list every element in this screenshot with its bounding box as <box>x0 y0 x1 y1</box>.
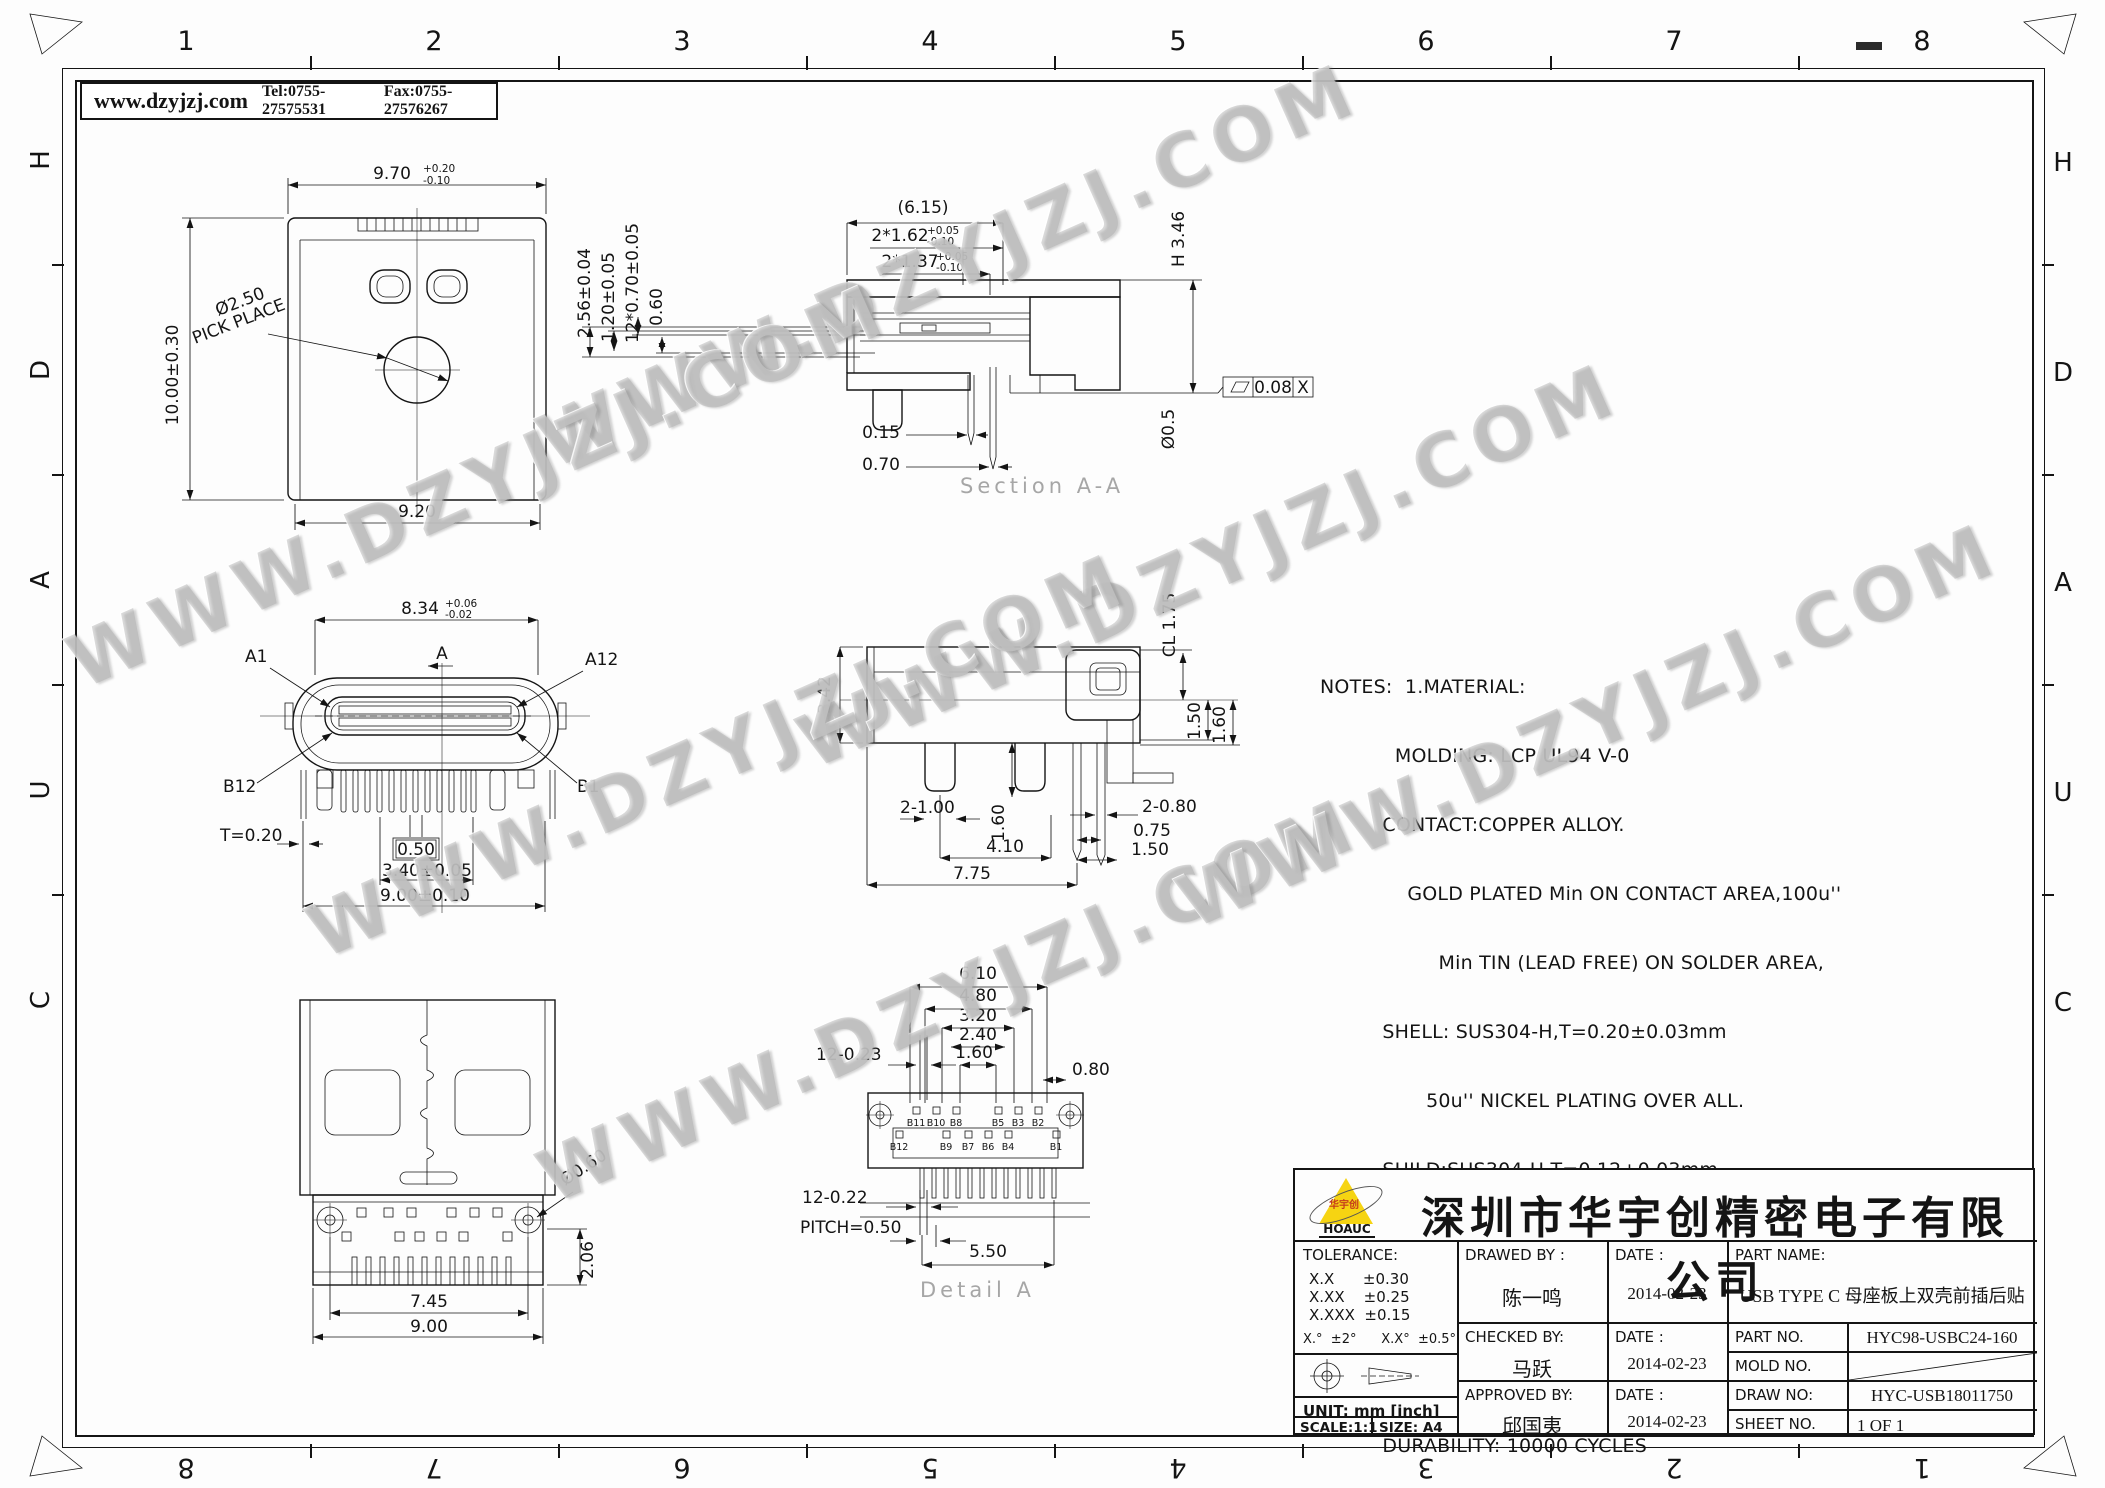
zone-letter-left-2: D <box>26 355 56 385</box>
pick-place-callout: Ø2.50 PICK PLACE <box>190 284 448 381</box>
section-pin-dims: 0.15 0.70 <box>862 423 1012 475</box>
zone-tick <box>52 894 64 896</box>
bottom-plate <box>313 1195 545 1285</box>
draw-no-label: DRAW NO: <box>1735 1386 1813 1404</box>
detail-pads-row2: B12 B9 B7 B6 B4 B1 <box>890 1131 1063 1153</box>
svg-text:X: X <box>1297 378 1309 398</box>
front-legs <box>301 770 555 819</box>
section-height-dim: H 3.46 Ø0.5 <box>1120 211 1202 449</box>
zone-number-top-3: 3 <box>662 26 702 57</box>
date-label-3: DATE : <box>1615 1386 1664 1404</box>
note-line: 50u'' NICKEL PLATING OVER ALL. <box>1320 1090 1841 1113</box>
zone-tick <box>2042 474 2054 476</box>
svg-text:B1: B1 <box>577 777 599 797</box>
svg-text:2*1.62: 2*1.62 <box>871 226 928 246</box>
note-line: NOTES: 1.MATERIAL: <box>1320 676 1841 699</box>
zone-tick <box>806 1444 808 1458</box>
side-pins <box>1073 743 1105 865</box>
zone-tick <box>806 56 808 70</box>
weld-slot-left <box>370 270 410 303</box>
detail-stacked-dims: 6.10 4.80 3.20 2.40 1.60 0.80 12-0.23 <box>816 964 1110 1103</box>
svg-text:B2: B2 <box>1032 1118 1045 1129</box>
svg-text:6.10: 6.10 <box>959 964 997 984</box>
svg-text:0.08: 0.08 <box>1254 378 1292 398</box>
zone-tick <box>1798 56 1800 70</box>
logo-name: HOAUC <box>1319 1222 1375 1238</box>
svg-text:0.60: 0.60 <box>647 288 667 326</box>
zone-tick <box>52 474 64 476</box>
pin-a1-callout: A1 <box>245 647 330 707</box>
shell-thickness-dim: T=0.20 <box>219 826 323 846</box>
svg-text:1.60: 1.60 <box>1210 706 1230 744</box>
detail-screw-right <box>1056 1101 1084 1129</box>
svg-text:-0.10: -0.10 <box>927 236 954 248</box>
svg-text:B12: B12 <box>223 777 256 797</box>
svg-text:0.15: 0.15 <box>862 423 900 443</box>
tolerance-angles: X.° ±2° X.X° ±0.5° <box>1303 1332 1456 1347</box>
svg-text:B11: B11 <box>907 1118 926 1129</box>
svg-text:B1: B1 <box>1050 1142 1063 1153</box>
corner-stamp <box>1856 42 1882 50</box>
svg-text:A: A <box>436 644 448 664</box>
pin-b1-callout: B1 <box>517 733 599 797</box>
zone-tick <box>558 1444 560 1458</box>
svg-text:7.75: 7.75 <box>953 864 991 884</box>
zone-number-top-7: 7 <box>1654 26 1694 57</box>
bottom-view: Ø0.60 7.45 9.00 2.06 <box>225 980 655 1352</box>
corner-trim-top-right <box>2016 10 2082 58</box>
zone-number-top-4: 4 <box>910 26 950 57</box>
detail-lower-dims: 12-0.22 PITCH=0.50 5.50 <box>800 1188 1054 1265</box>
svg-text:A12: A12 <box>585 650 618 670</box>
side-peg-2 <box>1015 743 1045 791</box>
svg-text:-0.10: -0.10 <box>423 175 450 187</box>
zone-number-bottom-8: 8 <box>166 1452 206 1483</box>
zone-tick <box>2042 264 2054 266</box>
note-line: MOLDING: LCP UL94 V-0 <box>1320 745 1841 768</box>
pin-a12-callout: A12 <box>517 650 618 707</box>
svg-text:9.70: 9.70 <box>373 164 411 184</box>
zone-tick <box>52 684 64 686</box>
svg-text:+0.20: +0.20 <box>423 163 455 175</box>
zone-number-top-2: 2 <box>414 26 454 57</box>
scale-value: SCALE:1:1 <box>1300 1420 1378 1436</box>
zone-letter-right-5: C <box>2048 988 2078 1018</box>
tolerance-label: TOLERANCE: <box>1303 1246 1398 1264</box>
svg-text:B4: B4 <box>1002 1142 1015 1153</box>
shell-seam <box>421 1000 434 1185</box>
draw-no-value: HYC-USB18011750 <box>1849 1386 2035 1406</box>
screw-boss-right <box>511 1203 545 1237</box>
zone-number-top-5: 5 <box>1158 26 1198 57</box>
detail-plate: B11 B10 B8 B5 B3 B2 B12 B9 B7 B6 B4 B1 <box>860 1093 1090 1217</box>
note-line: SHELL: SUS304-H,T=0.20±0.03mm <box>1320 1021 1841 1044</box>
sheet-no-label: SHEET NO. <box>1735 1415 1816 1433</box>
svg-text:3.42: 3.42 <box>815 676 835 714</box>
svg-text:1.50: 1.50 <box>1131 840 1169 860</box>
zone-tick <box>310 56 312 70</box>
svg-text:Ø0.5: Ø0.5 <box>1159 409 1179 449</box>
svg-text:2.56±0.04: 2.56±0.04 <box>575 248 595 338</box>
svg-text:12-0.23: 12-0.23 <box>816 1045 882 1065</box>
logo-text: 华宇创 <box>1329 1196 1359 1211</box>
top-view-width-dim: 9.70 +0.20 -0.10 <box>288 163 546 214</box>
zone-letter-right-2: D <box>2048 358 2078 388</box>
zone-number-bottom-7: 7 <box>414 1452 454 1483</box>
tolerance-row-1: X.X ±0.30 <box>1309 1270 1409 1288</box>
flatness-icon <box>1231 382 1249 392</box>
svg-text:0.80: 0.80 <box>1072 1060 1110 1080</box>
corner-trim-top-left <box>24 10 90 58</box>
zone-letter-right-1: H <box>2048 148 2078 178</box>
contact-comb <box>367 218 466 231</box>
note-line: CONTACT:COPPER ALLOY. <box>1320 814 1841 837</box>
part-name-label: PART NAME: <box>1735 1246 1826 1264</box>
part-no-label: PART NO. <box>1735 1328 1804 1346</box>
svg-text:B10: B10 <box>927 1118 946 1129</box>
svg-text:Ø0.60: Ø0.60 <box>557 1146 611 1191</box>
zone-letter-left-4: U <box>26 775 56 805</box>
date-value-3: 2014-02-23 <box>1607 1412 1727 1432</box>
projection-symbols <box>1307 1358 1447 1394</box>
drawing-sheet: 1 2 3 4 5 6 7 8 8 7 6 5 4 3 2 1 H D A U … <box>0 0 2105 1488</box>
top-view-height-dim: 10.00±0.30 <box>163 218 284 500</box>
approved-by-label: APPROVED BY: <box>1465 1386 1573 1404</box>
drawed-by-label: DRAWED BY : <box>1465 1246 1565 1264</box>
svg-text:9.00: 9.00 <box>410 1317 448 1337</box>
drawed-by-name: 陈一鸣 <box>1457 1282 1607 1311</box>
svg-text:2-1.00: 2-1.00 <box>900 798 955 818</box>
weld-slot-right <box>427 270 467 303</box>
side-bottom-dims: 2-1.00 1.60 4.10 7.75 2-0.80 0.75 1.50 <box>867 743 1197 885</box>
zone-tick <box>1302 56 1304 70</box>
svg-text:B9: B9 <box>940 1142 953 1153</box>
date-value-2: 2014-02-23 <box>1607 1354 1727 1374</box>
svg-text:4.10: 4.10 <box>986 837 1024 857</box>
svg-text:2.40: 2.40 <box>959 1025 997 1045</box>
solder-tail-comb <box>352 1257 511 1285</box>
svg-text:(6.15): (6.15) <box>897 198 948 218</box>
corner-trim-bottom-left <box>24 1432 90 1480</box>
zone-tick <box>310 1444 312 1458</box>
zone-tick <box>2042 894 2054 896</box>
zone-letter-left-1: H <box>26 145 56 175</box>
note-line: Min TIN (LEAD FREE) ON SOLDER AREA, <box>1320 952 1841 975</box>
part-no-value: HYC98-USBC24-160 <box>1849 1328 2035 1348</box>
svg-text:1.60: 1.60 <box>955 1043 993 1063</box>
svg-text:3.40±0.05: 3.40±0.05 <box>382 861 472 881</box>
svg-text:1.50: 1.50 <box>1185 702 1205 740</box>
side-body <box>840 647 1238 865</box>
svg-text:-0.10: -0.10 <box>936 262 963 274</box>
zone-letter-left-3: A <box>26 565 56 595</box>
sheet-no-value: 1 OF 1 <box>1857 1416 1904 1436</box>
svg-text:-0.02: -0.02 <box>445 609 472 621</box>
checked-by-label: CHECKED BY: <box>1465 1328 1564 1346</box>
side-height-dim: 3.42 <box>815 647 863 743</box>
svg-text:A1: A1 <box>245 647 267 667</box>
svg-text:2-0.80: 2-0.80 <box>1142 797 1197 817</box>
detail-pads-row1: B11 B10 B8 B5 B3 B2 <box>907 1107 1045 1129</box>
zone-tick <box>1302 1444 1304 1458</box>
pad-row-2 <box>342 1232 512 1241</box>
zone-number-top-1: 1 <box>166 26 206 57</box>
svg-text:B12: B12 <box>890 1142 909 1153</box>
svg-text:2.06: 2.06 <box>578 1241 598 1279</box>
svg-text:T=0.20: T=0.20 <box>219 826 282 846</box>
section-label: Section A-A <box>960 474 1124 498</box>
bottom-dims: 7.45 9.00 2.06 <box>313 1229 598 1344</box>
svg-text:7.45: 7.45 <box>410 1292 448 1312</box>
corner-trim-bottom-right <box>2016 1432 2082 1480</box>
svg-text:3.20: 3.20 <box>959 1006 997 1026</box>
approved-by-name: 邱国夷 <box>1457 1410 1607 1439</box>
tolerance-row-3: X.XXX ±0.15 <box>1309 1306 1410 1324</box>
pitch-dim-boxed: 0.50 <box>393 815 439 860</box>
svg-text:B6: B6 <box>982 1142 995 1153</box>
flatness-frame: 0.08 X <box>1218 377 1313 398</box>
svg-text:0.75: 0.75 <box>1133 821 1171 841</box>
zone-number-bottom-4: 4 <box>1158 1452 1198 1483</box>
front-view: 8.34 +0.06 -0.02 A A1 A12 <box>165 565 635 937</box>
svg-text:1.20±0.05: 1.20±0.05 <box>599 252 619 342</box>
svg-text:B5: B5 <box>992 1118 1005 1129</box>
detail-pin-comb <box>920 1168 1056 1198</box>
zone-tick <box>1054 56 1056 70</box>
zone-tick <box>558 56 560 70</box>
svg-text:B8: B8 <box>950 1118 963 1129</box>
zone-number-top-6: 6 <box>1406 26 1446 57</box>
zone-number-bottom-1: 1 <box>1902 1452 1942 1483</box>
zone-tick <box>1054 1444 1056 1458</box>
zone-number-top-8: 8 <box>1902 26 1942 57</box>
top-view-base-dim: 9.20 <box>295 502 540 530</box>
svg-text:8.34: 8.34 <box>401 599 439 619</box>
zone-letter-left-5: C <box>26 985 56 1015</box>
note-line: GOLD PLATED Min ON CONTACT AREA,100u'' <box>1320 883 1841 906</box>
side-peg-1 <box>925 743 955 791</box>
mold-no-label: MOLD NO. <box>1735 1357 1812 1375</box>
hole-callout: Ø0.60 <box>537 1146 611 1217</box>
svg-text:H 3.46: H 3.46 <box>1169 211 1189 267</box>
mold-no-blank <box>1849 1353 2037 1380</box>
svg-text:0.70: 0.70 <box>862 455 900 475</box>
svg-text:PITCH=0.50: PITCH=0.50 <box>800 1218 901 1238</box>
svg-text:9.00±0.10: 9.00±0.10 <box>380 886 470 906</box>
svg-text:4.80: 4.80 <box>959 986 997 1006</box>
svg-text:B7: B7 <box>962 1142 975 1153</box>
side-cl-dim: CL 1.75 1.50 1.60 <box>1140 593 1240 745</box>
zone-letter-right-4: U <box>2048 778 2078 808</box>
size-value: SIZE: A4 <box>1379 1420 1443 1436</box>
svg-text:CL 1.75: CL 1.75 <box>1160 593 1180 658</box>
svg-text:0.50: 0.50 <box>397 840 435 860</box>
svg-text:9.20: 9.20 <box>398 502 436 522</box>
zone-tick <box>1550 56 1552 70</box>
bottom-body <box>300 1000 555 1195</box>
svg-text:2*1.37: 2*1.37 <box>881 252 938 272</box>
svg-text:10.00±0.30: 10.00±0.30 <box>163 325 183 426</box>
front-width-dim: 8.34 +0.06 -0.02 <box>315 598 538 675</box>
detail-view: 6.10 4.80 3.20 2.40 1.60 0.80 12-0.23 <box>760 935 1145 1320</box>
part-name-value: USB TYPE C 母座板上双壳前插后贴 <box>1729 1282 2035 1308</box>
side-view: 3.42 CL 1.75 1.50 1.60 2-1.00 1.60 4.10 … <box>800 555 1260 933</box>
tolerance-row-2: X.XX ±0.25 <box>1309 1288 1410 1306</box>
checked-by-name: 马跃 <box>1457 1353 1607 1382</box>
title-block: 华宇创 HOAUC 深圳市华宇创精密电子有限公司 TOLERANCE: X.X … <box>1293 1168 2035 1435</box>
top-view: 9.70 +0.20 -0.10 <box>140 90 620 542</box>
svg-text:12-0.22: 12-0.22 <box>802 1188 868 1208</box>
pad-row-1 <box>357 1208 502 1217</box>
section-view: 2.56±0.04 1.20±0.05 12*0.70±0.05 0.60 (6… <box>570 135 1380 515</box>
date-label-2: DATE : <box>1615 1328 1664 1346</box>
detail-screw-left <box>866 1101 894 1129</box>
zone-number-bottom-6: 6 <box>662 1452 702 1483</box>
zone-tick <box>2042 684 2054 686</box>
date-value-1: 2014-02-23 <box>1607 1284 1727 1304</box>
zone-letter-right-3: A <box>2048 568 2078 598</box>
section-pins <box>968 367 1040 469</box>
zone-tick <box>52 264 64 266</box>
top-view-body <box>288 208 546 518</box>
svg-text:B3: B3 <box>1012 1118 1025 1129</box>
zone-number-bottom-5: 5 <box>910 1452 950 1483</box>
section-left-dims: 2.56±0.04 1.20±0.05 12*0.70±0.05 0.60 <box>575 223 875 357</box>
date-label-1: DATE : <box>1615 1246 1664 1264</box>
svg-text:12*0.70±0.05: 12*0.70±0.05 <box>623 223 643 343</box>
svg-text:5.50: 5.50 <box>969 1242 1007 1262</box>
detail-label: Detail A <box>920 1278 1035 1302</box>
